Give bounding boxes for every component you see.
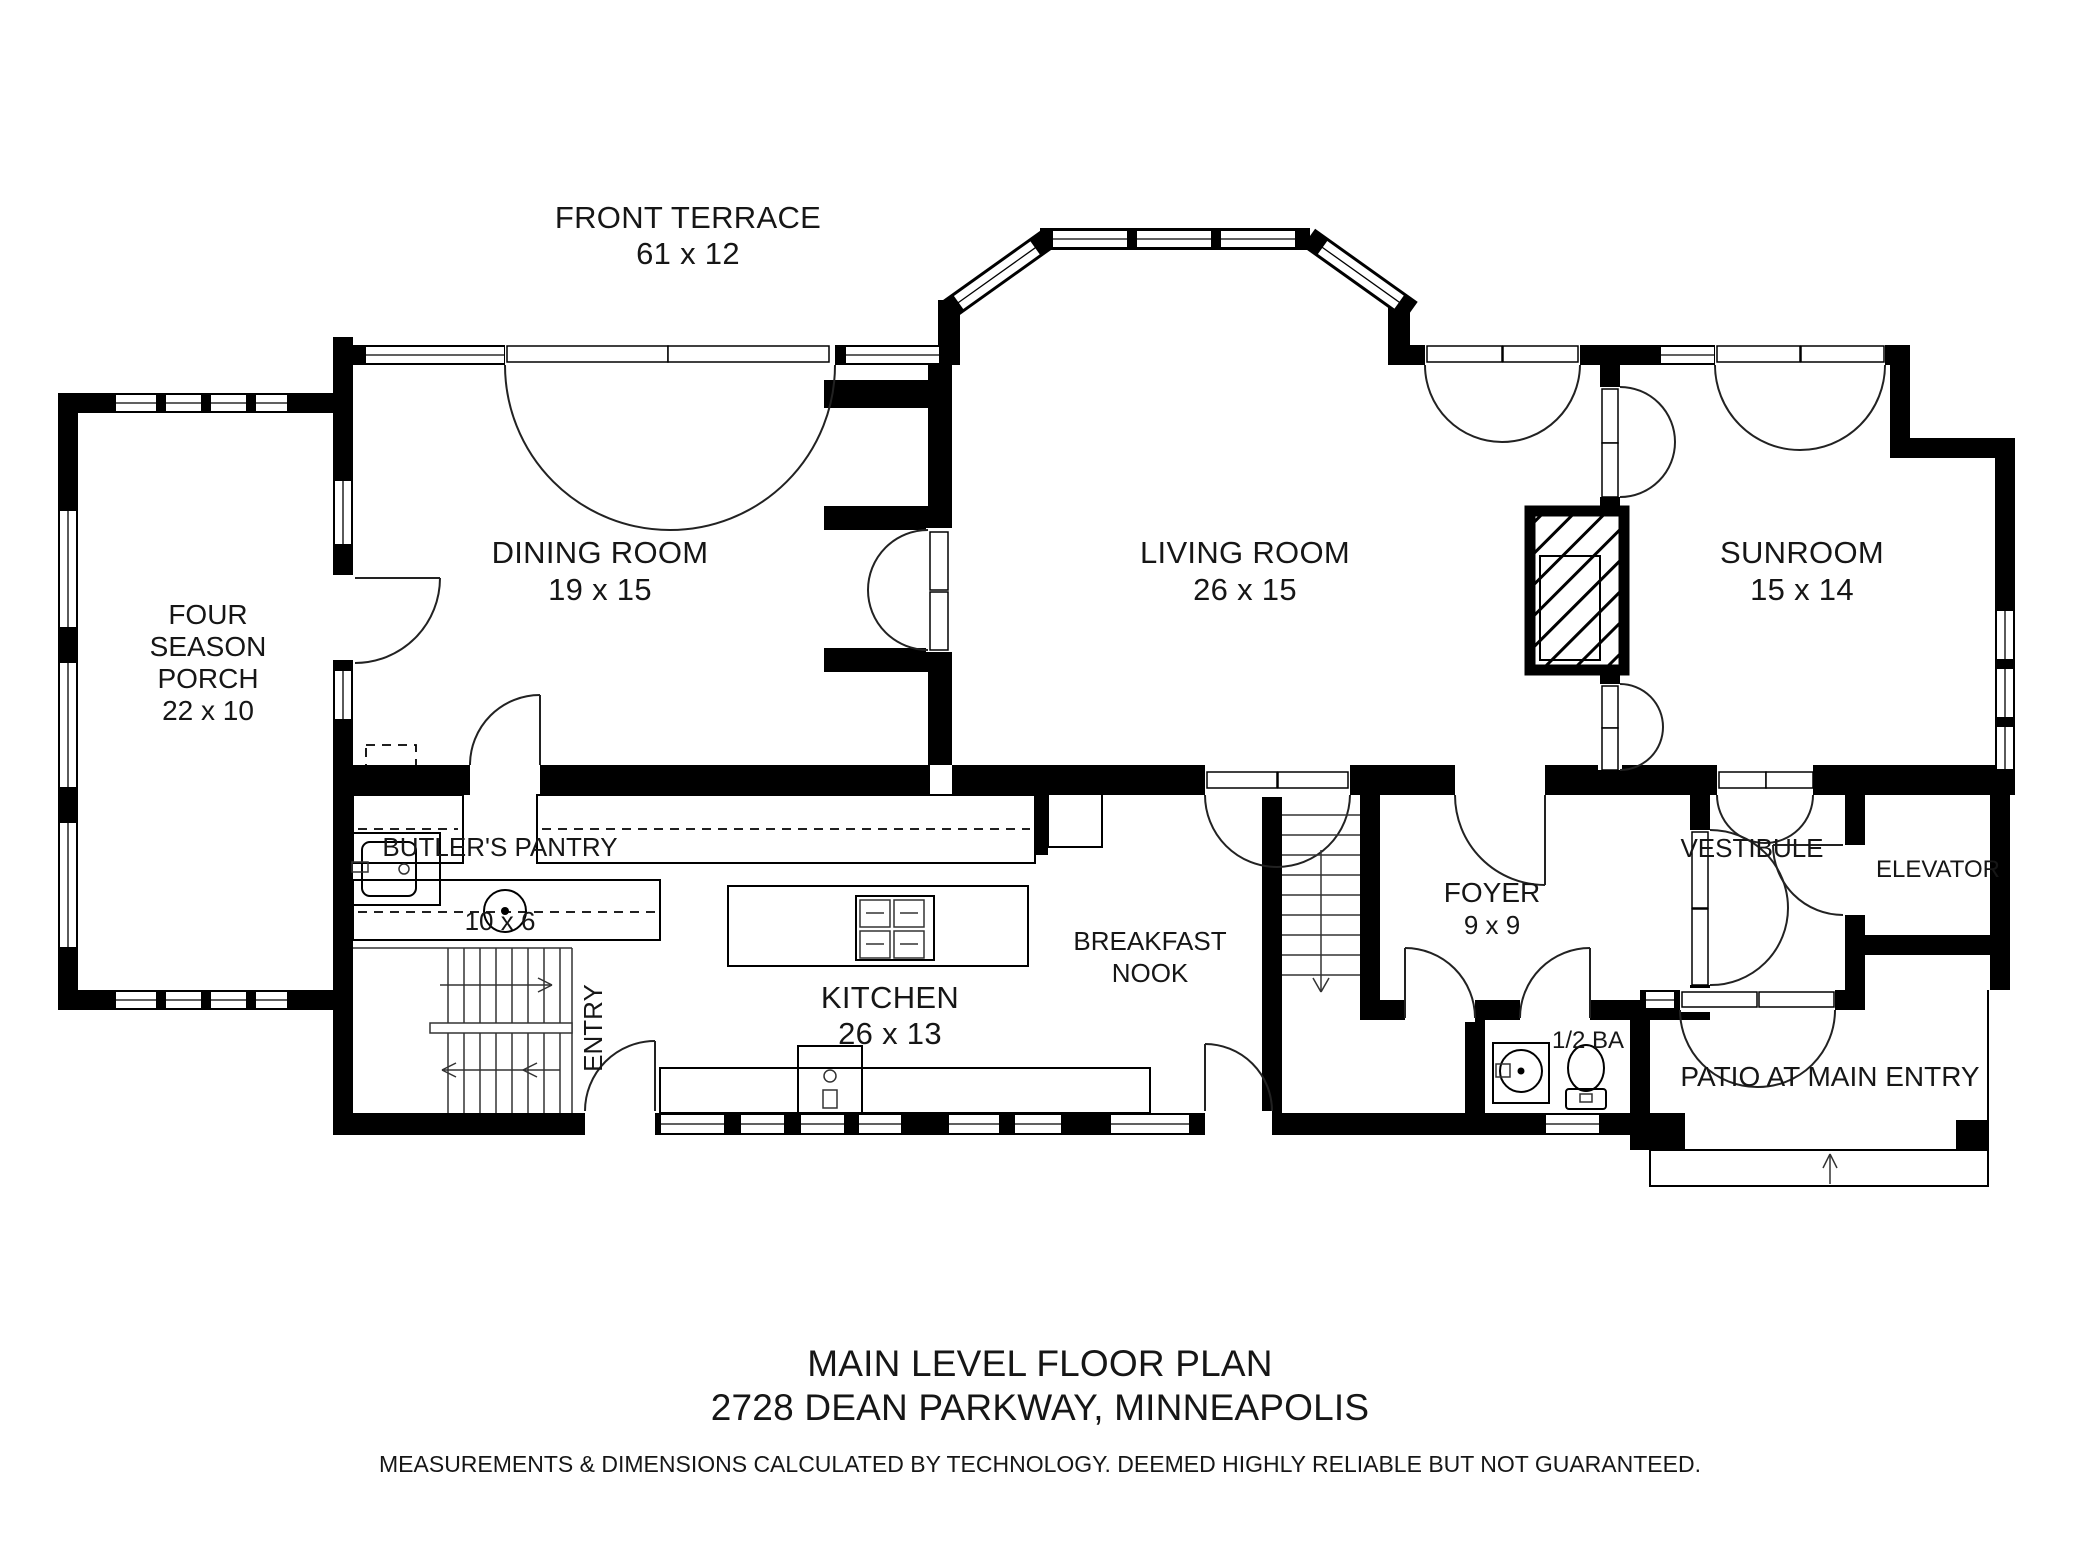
- foyer-dims: 9 x 9: [1464, 910, 1520, 940]
- fireplace: [1530, 511, 1624, 670]
- kitchen-label: KITCHEN: [821, 980, 959, 1015]
- foyer-label: FOYER: [1444, 877, 1540, 908]
- entry-staircase: [353, 948, 572, 1113]
- sunroom-dims: 15 x 14: [1750, 572, 1854, 607]
- butlers-pantry-dims: 10 x 6: [465, 906, 536, 936]
- entry-label: ENTRY: [578, 984, 608, 1072]
- plan-title: MAIN LEVEL FLOOR PLAN: [807, 1343, 1272, 1384]
- porch-label-line3: PORCH: [157, 663, 258, 694]
- breakfast-nook-label-line1: BREAKFAST: [1073, 926, 1226, 956]
- living-room-dims: 26 x 15: [1193, 572, 1297, 607]
- room-labels: FRONT TERRACE 61 x 12 FOUR SEASON PORCH …: [150, 200, 2000, 1092]
- half-bath-label: 1/2 BA: [1552, 1027, 1624, 1054]
- floor-plan-drawing: FRONT TERRACE 61 x 12 FOUR SEASON PORCH …: [0, 0, 2080, 1560]
- title-block: MAIN LEVEL FLOOR PLAN 2728 DEAN PARKWAY,…: [379, 1343, 1701, 1477]
- plan-disclaimer: MEASUREMENTS & DIMENSIONS CALCULATED BY …: [379, 1451, 1701, 1477]
- bay-window-right-wall: [1302, 229, 1417, 320]
- patio-label: PATIO AT MAIN ENTRY: [1680, 1061, 1980, 1092]
- butlers-pantry-label: BUTLER'S PANTRY: [382, 832, 617, 862]
- breakfast-nook-label-line2: NOOK: [1112, 958, 1189, 988]
- kitchen-dims: 26 x 13: [838, 1016, 942, 1051]
- porch-dims: 22 x 10: [162, 695, 254, 726]
- plan-address: 2728 DEAN PARKWAY, MINNEAPOLIS: [711, 1387, 1370, 1428]
- floor-plan-page: FRONT TERRACE 61 x 12 FOUR SEASON PORCH …: [0, 0, 2080, 1560]
- porch-label-line1: FOUR: [168, 599, 247, 630]
- sunroom-label: SUNROOM: [1720, 535, 1884, 570]
- front-terrace-label: FRONT TERRACE: [555, 200, 821, 235]
- vestibule-label: VESTIBULE: [1680, 833, 1823, 863]
- dining-room-label: DINING ROOM: [492, 535, 709, 570]
- dining-room-dims: 19 x 15: [548, 572, 652, 607]
- bay-window-left-wall: [938, 230, 1053, 321]
- main-staircase: [1282, 815, 1360, 992]
- porch-label-line2: SEASON: [150, 631, 267, 662]
- living-room-label: LIVING ROOM: [1140, 535, 1350, 570]
- front-terrace-dims: 61 x 12: [636, 236, 740, 271]
- elevator-label: ELEVATOR: [1876, 856, 2000, 883]
